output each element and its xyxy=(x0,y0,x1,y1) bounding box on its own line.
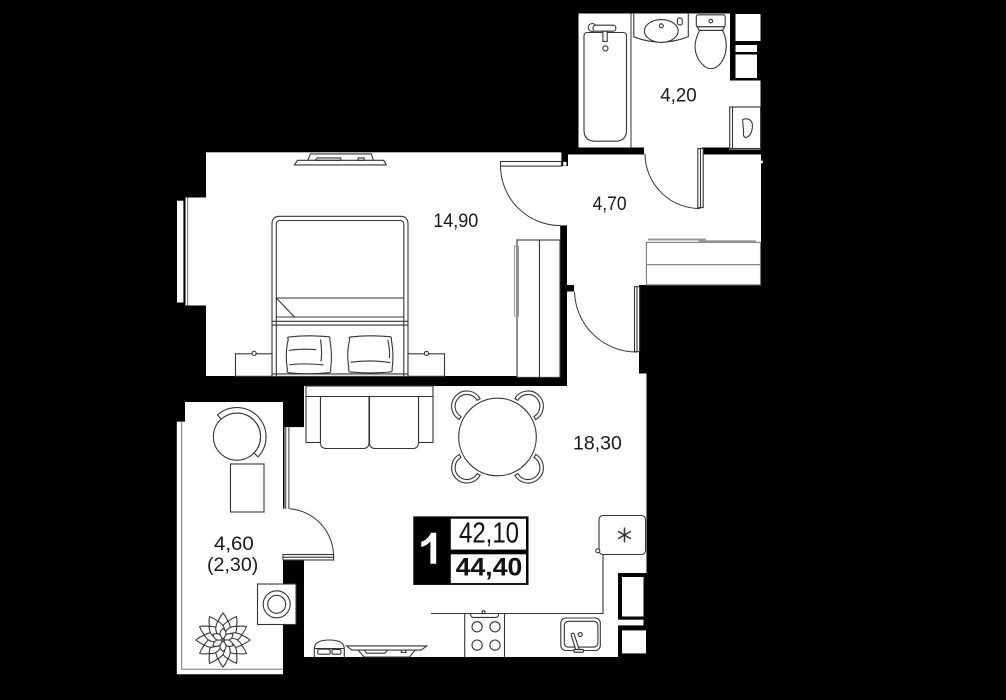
svg-text:(2,30): (2,30) xyxy=(207,555,258,576)
svg-text:44,40: 44,40 xyxy=(456,554,523,582)
svg-text:4,60: 4,60 xyxy=(214,534,254,555)
svg-text:42,10: 42,10 xyxy=(459,517,519,549)
svg-text:4,20: 4,20 xyxy=(660,86,697,107)
svg-text:14,90: 14,90 xyxy=(433,211,478,232)
svg-text:4,70: 4,70 xyxy=(593,194,627,215)
svg-text:18,30: 18,30 xyxy=(573,433,622,454)
